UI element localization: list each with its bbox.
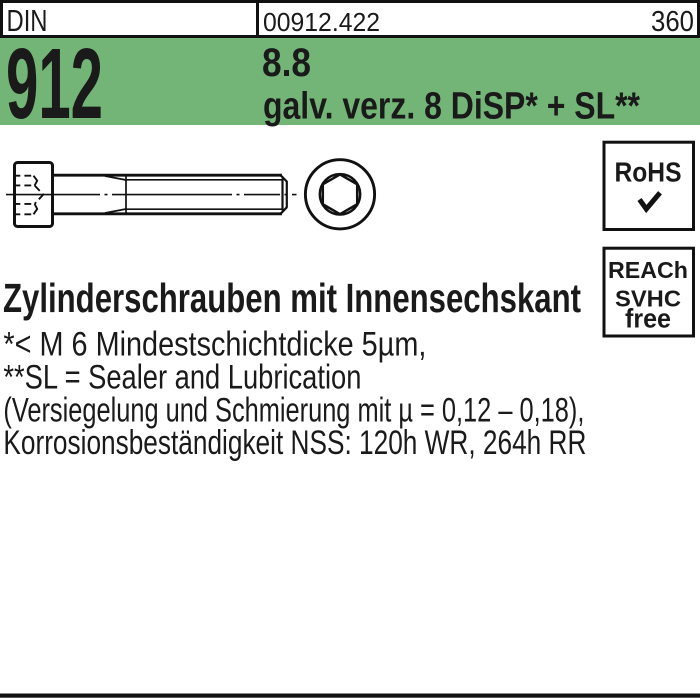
svg-text:912: 912 <box>6 28 103 140</box>
svg-text:REACh: REACh <box>608 257 688 283</box>
svg-text:free: free <box>625 304 671 334</box>
svg-text:Korrosionsbeständigkeit NSS: 1: Korrosionsbeständigkeit NSS: 120h WR, 26… <box>3 424 586 462</box>
svg-text:8.8: 8.8 <box>262 41 311 85</box>
svg-text:galv. verz. 8 DiSP* + SL**: galv. verz. 8 DiSP* + SL** <box>263 85 640 127</box>
svg-text:Zylinderschrauben mit Innensec: Zylinderschrauben mit Innensechskant <box>3 275 581 321</box>
svg-text:00912.422: 00912.422 <box>263 9 380 37</box>
svg-text:RoHS: RoHS <box>615 157 682 188</box>
svg-text:360: 360 <box>651 6 694 38</box>
